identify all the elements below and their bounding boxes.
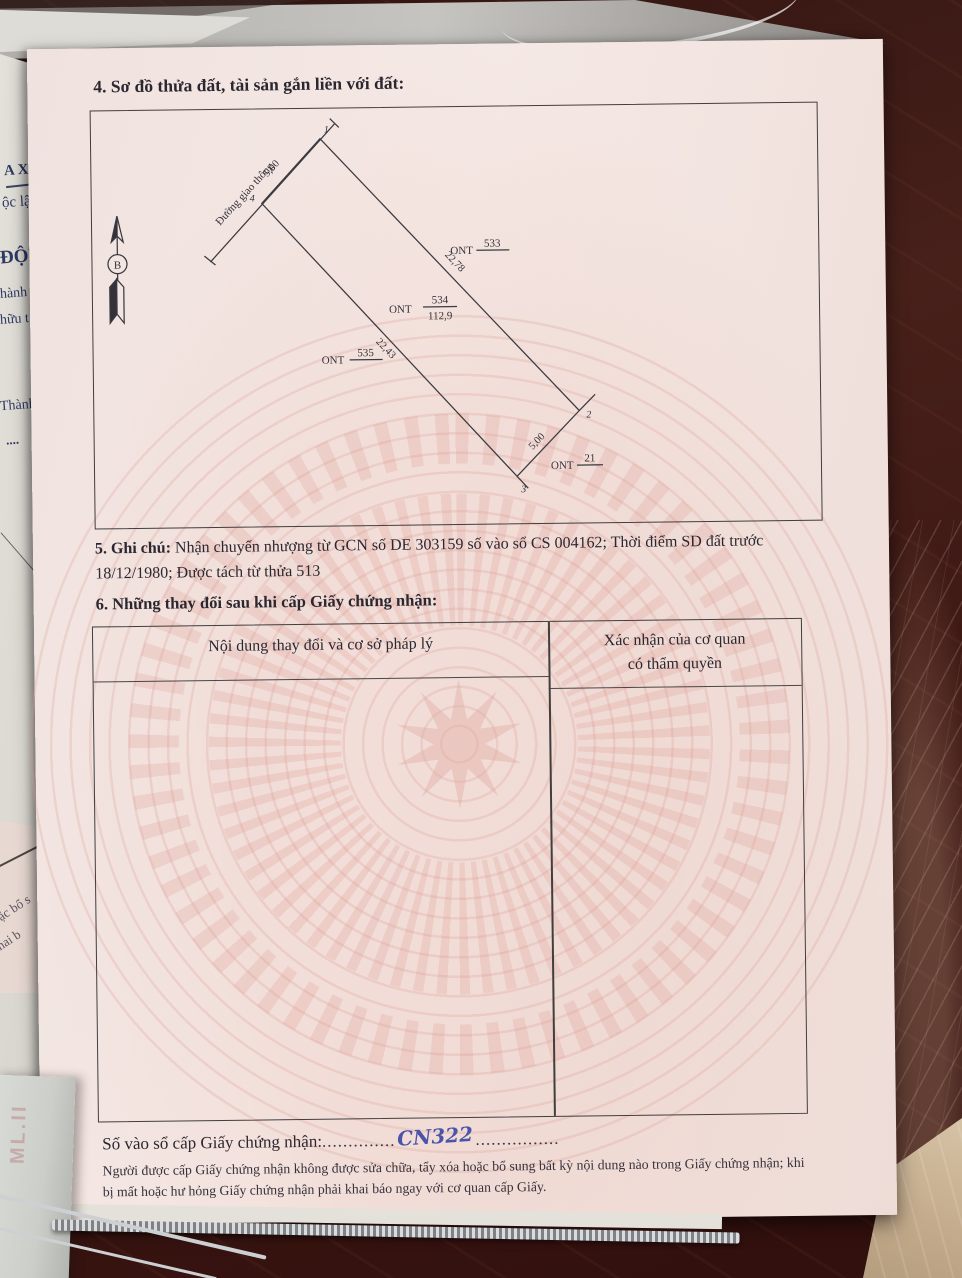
road-line (209, 124, 337, 263)
dim-left: 22,43 (373, 337, 397, 362)
folder-label: ML.II (7, 1103, 32, 1164)
adjacent-plot-bottom-code: ONT (551, 460, 574, 472)
corner-point-2: 2 (586, 409, 591, 420)
parcel-area: 112,9 (428, 310, 453, 322)
section4-title: 4. Sơ đồ thửa đất, tài sản gắn liền với … (93, 73, 404, 98)
changes-table-col2-header: Xác nhận của cơ quan có thẩm quyền (548, 627, 802, 678)
parcel-boundary (261, 136, 580, 480)
adjacent-plot-left-number: 535 (357, 347, 374, 359)
parcel-number: 534 (432, 294, 449, 306)
parcel-code: ONT (389, 304, 412, 316)
leader-dots: ................ (475, 1129, 559, 1149)
changes-table-col1-header: Nội dung thay đổi và cơ sở pháp lý (93, 634, 548, 658)
header-separator-right (549, 685, 802, 689)
north-arrow-head (111, 216, 117, 242)
underlying-text-fragment: hành (0, 285, 28, 303)
north-arrow-flag (110, 279, 118, 323)
changes-table: Nội dung thay đổi và cơ sở pháp lý Xác n… (92, 618, 808, 1123)
handwritten-registry-number: CN322 (397, 1122, 474, 1151)
certificate-page: 4. Sơ đồ thửa đất, tài sản gắn liền với … (27, 39, 897, 1225)
underlying-text-fragment: .... (5, 432, 19, 449)
section6-title: 6. Những thay đổi sau khi cấp Giấy chứng… (96, 590, 438, 614)
corner-point-1: 1 (324, 125, 329, 136)
adjacent-plot-bottom-number: 21 (584, 452, 595, 464)
photo-scene: A XÃ ộc lập ĐỘN hành hữu t Thành .... ặc… (0, 0, 962, 1278)
underlying-text-fragment: khai b (0, 927, 24, 958)
adjacent-plot-right-code: ONT (450, 245, 473, 257)
corner-point-4: 4 (250, 194, 255, 205)
plot-diagram: B Đường giao thông 5,00 22,78 22,43 5,00… (90, 102, 823, 530)
leader-dots: .............. (322, 1131, 396, 1151)
footer-warning-note: Người được cấp Giấy chứng nhận không đượ… (102, 1152, 804, 1203)
adjacent-plot-left-code: ONT (322, 354, 345, 366)
cadastral-sketch: B Đường giao thông 5,00 22,78 22,43 5,00… (91, 103, 822, 529)
corner-point-3: 3 (520, 484, 526, 495)
underlying-text-fragment: hữu t (0, 311, 30, 329)
column-divider (548, 622, 556, 1116)
folder-edge: ML.II (0, 1075, 76, 1278)
north-marker-label: B (114, 260, 121, 272)
header-separator-left (94, 676, 549, 683)
section5-label: 5. Ghi chú: (95, 540, 171, 558)
page-content: 4. Sơ đồ thửa đất, tài sản gắn liền với … (27, 39, 897, 1225)
section5-notes: 5. Ghi chú: Nhận chuyển nhượng từ GCN số… (95, 528, 808, 587)
underlying-text-fragment: ặc bổ s (0, 891, 34, 924)
col2-header-line1: Xác nhận của cơ quan (604, 631, 746, 650)
adjacent-plot-right-number: 533 (484, 237, 501, 249)
registry-label: Số vào sổ cấp Giấy chứng nhận: (102, 1132, 322, 1154)
col2-header-line2: có thẩm quyền (628, 655, 722, 673)
section5-text: Nhận chuyển nhượng từ GCN số DE 303159 s… (95, 532, 763, 582)
registry-number-line: Số vào sổ cấp Giấy chứng nhận:..........… (102, 1125, 559, 1155)
dim-bottom: 5,00 (527, 431, 548, 452)
